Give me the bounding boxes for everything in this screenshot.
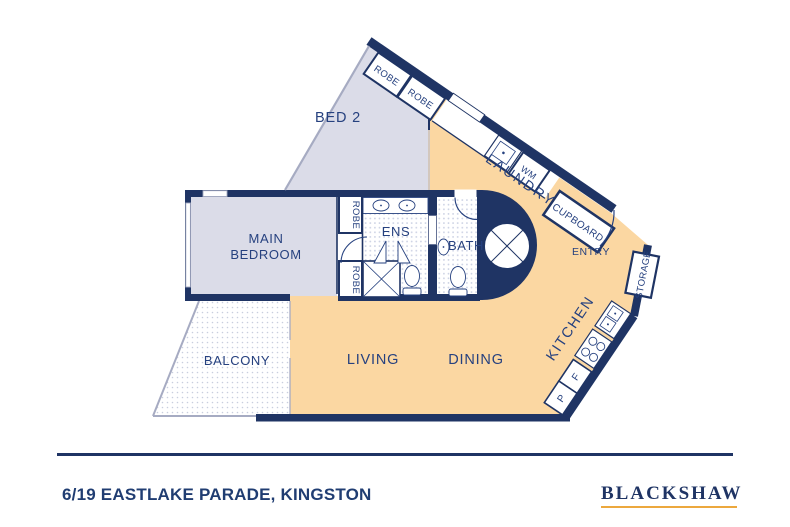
- wall-living-bottom: [256, 414, 570, 422]
- wall-bedroom-bottom: [185, 294, 290, 301]
- toilet-icon: [451, 267, 466, 288]
- agency-logo-text: BLACKSHAW: [601, 483, 737, 505]
- agency-logo-underline: [601, 506, 737, 508]
- agency-logo: BLACKSHAW: [601, 483, 737, 508]
- bath-label: BATH: [448, 238, 484, 253]
- wall-ens-bath: [428, 197, 437, 215]
- main-bedroom-label: BEDROOM: [230, 247, 301, 262]
- bath-niche: [429, 216, 437, 245]
- main-bedroom-label: MAIN: [249, 231, 284, 246]
- toilet-icon: [449, 289, 467, 296]
- window: [186, 203, 191, 287]
- balcony-label: BALCONY: [204, 353, 270, 368]
- footer-divider: [57, 453, 733, 456]
- property-address: 6/19 EASTLAKE PARADE, KINGSTON: [62, 485, 372, 505]
- basin-icon: [406, 205, 408, 207]
- toilet-icon: [403, 288, 421, 295]
- robe-label: ROBE: [350, 201, 361, 230]
- entry-label: ENTRY: [572, 246, 610, 258]
- dining-label: DINING: [448, 352, 504, 368]
- wall-ens-bath: [428, 245, 437, 301]
- floorplan-page: ROBE ROBE WM CUPBOARD STORAGE F: [0, 0, 790, 527]
- floorplan-svg: ROBE ROBE WM CUPBOARD STORAGE F: [0, 0, 790, 450]
- living-label: LIVING: [347, 352, 399, 368]
- door-opening-bath: [455, 190, 477, 198]
- basin-icon: [443, 246, 445, 248]
- wall-bedroom-top: [185, 190, 480, 197]
- robe-label: ROBE: [350, 266, 361, 295]
- basin-icon: [380, 205, 382, 207]
- toilet-icon: [405, 266, 420, 287]
- ens-label: ENS: [382, 224, 411, 239]
- bed2-label: BED 2: [315, 110, 361, 126]
- window: [203, 191, 227, 197]
